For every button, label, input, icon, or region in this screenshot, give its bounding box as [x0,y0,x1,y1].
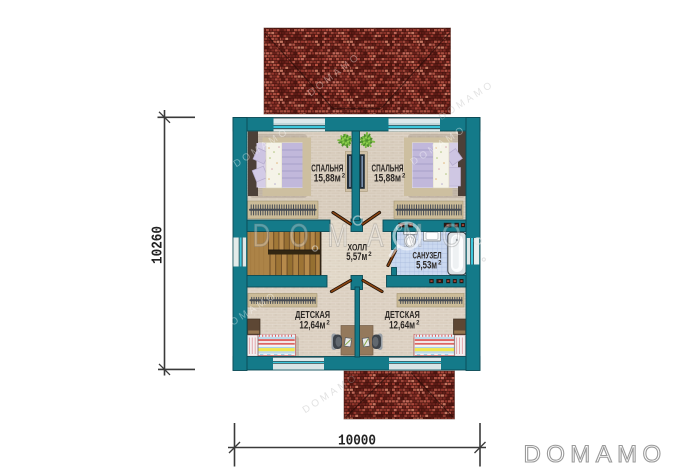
svg-text:15,88м: 15,88м [374,173,401,185]
svg-text:5,53м: 5,53м [416,260,437,272]
svg-text:10260: 10260 [151,226,167,264]
svg-text:DOMAMO: DOMAMO [524,441,667,468]
svg-text:12,64м: 12,64м [299,320,325,332]
svg-text:DOMAMO: DOMAMO [253,219,480,255]
svg-text:12,64м: 12,64м [389,320,415,332]
svg-text:10000: 10000 [338,434,376,450]
svg-text:15,88м: 15,88м [314,173,341,185]
